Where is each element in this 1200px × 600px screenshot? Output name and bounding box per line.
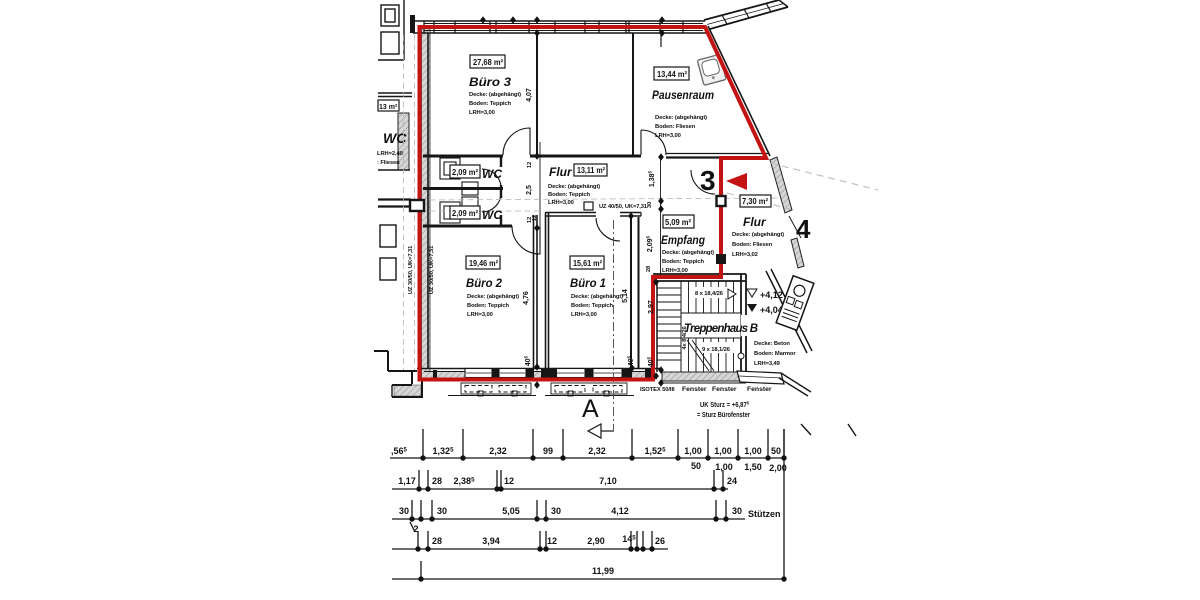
svg-text:2,09 m²: 2,09 m² — [452, 209, 478, 218]
svg-text:ISOTEX 50/III: ISOTEX 50/III — [640, 387, 675, 393]
svg-text:30: 30 — [551, 506, 561, 516]
svg-text:28: 28 — [432, 476, 442, 486]
svg-text:LRH=2,40: LRH=2,40 — [377, 151, 403, 157]
svg-text:28: 28 — [432, 536, 442, 546]
svg-text:UK Sturz = +6,875: UK Sturz = +6,875 — [700, 401, 749, 410]
svg-text:50: 50 — [691, 461, 701, 471]
svg-text:Boden: Teppich: Boden: Teppich — [548, 192, 591, 198]
svg-text:7,30 m²: 7,30 m² — [742, 197, 768, 206]
svg-text:Büro 2: Büro 2 — [466, 276, 502, 290]
svg-text:UZ 30/50, UK=7,31: UZ 30/50, UK=7,31 — [429, 245, 435, 294]
svg-text:99: 99 — [543, 446, 553, 456]
svg-text:2,09 m²: 2,09 m² — [452, 168, 478, 177]
svg-text:1,17: 1,17 — [398, 476, 416, 486]
svg-text:Flur: Flur — [743, 215, 767, 229]
svg-text:5,09 m²: 5,09 m² — [665, 218, 691, 227]
svg-text:3,94: 3,94 — [482, 536, 500, 546]
svg-text:Boden: Teppich: Boden: Teppich — [662, 259, 705, 265]
svg-text:2: 2 — [413, 524, 418, 534]
svg-text:24: 24 — [727, 476, 737, 486]
svg-text:UZ 30/50, UK=7,31: UZ 30/50, UK=7,31 — [408, 245, 414, 294]
svg-text:2,5: 2,5 — [526, 185, 533, 195]
svg-text:2,90: 2,90 — [587, 536, 605, 546]
svg-text:26: 26 — [655, 536, 665, 546]
svg-text:27,68 m²: 27,68 m² — [473, 58, 503, 67]
svg-text:30: 30 — [437, 506, 447, 516]
svg-text:Boden: Marmor: Boden: Marmor — [754, 351, 796, 357]
svg-text:UZ 40/50, UK=7,31: UZ 40/50, UK=7,31 — [599, 204, 648, 210]
svg-text:5,14: 5,14 — [622, 289, 629, 303]
svg-text:2,32: 2,32 — [588, 446, 606, 456]
svg-text:Fenster: Fenster — [682, 386, 707, 393]
svg-text:Decke: (abgehängt): Decke: (abgehängt) — [548, 184, 600, 190]
svg-text:Fenster: Fenster — [747, 386, 772, 393]
svg-text:Decke: (abgehängt): Decke: (abgehängt) — [662, 250, 714, 256]
svg-text:50: 50 — [771, 446, 781, 456]
svg-text:Decke: (abgehängt): Decke: (abgehängt) — [571, 294, 623, 300]
svg-text:LRH=3,00: LRH=3,00 — [469, 110, 495, 116]
svg-text:Büro 3: Büro 3 — [469, 75, 511, 89]
svg-text:1,50: 1,50 — [744, 462, 762, 472]
svg-text:WC: WC — [482, 208, 502, 222]
svg-text:19,46 m²: 19,46 m² — [469, 259, 498, 268]
svg-text:Boden: Teppich: Boden: Teppich — [571, 303, 614, 309]
svg-text:13,44 m²: 13,44 m² — [657, 70, 687, 79]
svg-text:12: 12 — [527, 162, 533, 168]
svg-text:LRH=3,00: LRH=3,00 — [467, 312, 493, 318]
svg-text:2,32: 2,32 — [489, 446, 507, 456]
svg-text:Fenster: Fenster — [712, 386, 737, 393]
svg-text:1,00: 1,00 — [715, 462, 733, 472]
svg-text:Pausenraum: Pausenraum — [652, 88, 714, 102]
svg-text:1,00: 1,00 — [684, 446, 702, 456]
svg-text:LRH=3,00: LRH=3,00 — [662, 268, 688, 274]
svg-text:Decke: Beton: Decke: Beton — [754, 341, 790, 347]
svg-text:LRH=3,00: LRH=3,00 — [548, 200, 574, 206]
svg-text:12: 12 — [547, 536, 557, 546]
svg-text:4,07: 4,07 — [526, 88, 533, 102]
svg-text:13,11 m²: 13,11 m² — [577, 166, 605, 175]
svg-text:8 x 18,4/26: 8 x 18,4/26 — [695, 291, 724, 297]
svg-text:Flur: Flur — [549, 165, 573, 179]
svg-text:LRH=3,00: LRH=3,00 — [655, 133, 681, 139]
svg-text:1,00: 1,00 — [714, 446, 732, 456]
svg-text:Boden: Fliesen: Boden: Fliesen — [732, 242, 773, 248]
svg-text:Boden: Teppich: Boden: Teppich — [467, 303, 510, 309]
svg-text:A: A — [582, 395, 599, 423]
svg-text:12: 12 — [504, 476, 514, 486]
svg-text:LRH=3,49: LRH=3,49 — [754, 361, 781, 367]
svg-text:13 m²: 13 m² — [379, 104, 398, 111]
svg-text:Decke: (abgehängt): Decke: (abgehängt) — [467, 294, 519, 300]
svg-text:9 x 18,1/26: 9 x 18,1/26 — [702, 347, 731, 353]
svg-text:Treppenhaus B: Treppenhaus B — [684, 323, 758, 335]
svg-text:Decke: (abgehängt): Decke: (abgehängt) — [732, 232, 784, 238]
svg-text:4x 8,4/26: 4x 8,4/26 — [682, 325, 688, 349]
svg-text:2,00: 2,00 — [769, 463, 787, 473]
svg-text:1,00: 1,00 — [744, 446, 762, 456]
svg-text:12: 12 — [532, 215, 538, 221]
svg-text:11,99: 11,99 — [592, 566, 614, 576]
svg-text:30: 30 — [647, 202, 653, 208]
svg-text:7,10: 7,10 — [599, 476, 617, 486]
svg-text:= Sturz Bürofenster: = Sturz Bürofenster — [697, 412, 750, 419]
svg-text:4,12: 4,12 — [611, 506, 629, 516]
svg-text:28: 28 — [646, 265, 652, 272]
svg-text:3: 3 — [700, 165, 716, 196]
svg-text:15,61 m²: 15,61 m² — [573, 259, 602, 268]
svg-text:LRH=3,02: LRH=3,02 — [732, 252, 758, 258]
svg-text:: Fliesen: : Fliesen — [377, 160, 400, 166]
svg-text:Boden: Teppich: Boden: Teppich — [469, 101, 512, 107]
svg-text:Decke: (abgehängt): Decke: (abgehängt) — [469, 92, 521, 98]
svg-text:4: 4 — [796, 214, 811, 244]
svg-text:Büro 1: Büro 1 — [570, 276, 606, 290]
svg-text:Empfang: Empfang — [661, 233, 706, 247]
svg-text:2,97: 2,97 — [648, 300, 655, 314]
svg-text:Stützen: Stützen — [748, 509, 781, 519]
svg-text:WC: WC — [482, 167, 502, 181]
svg-text:LRH=3,00: LRH=3,00 — [571, 312, 597, 318]
svg-text:5,05: 5,05 — [502, 506, 520, 516]
svg-text:Decke: (abgehängt): Decke: (abgehängt) — [655, 115, 707, 121]
svg-text:4,76: 4,76 — [523, 291, 530, 305]
svg-text:30: 30 — [399, 506, 409, 516]
svg-text:30: 30 — [732, 506, 742, 516]
svg-text:Boden: Fliesen: Boden: Fliesen — [655, 124, 696, 130]
